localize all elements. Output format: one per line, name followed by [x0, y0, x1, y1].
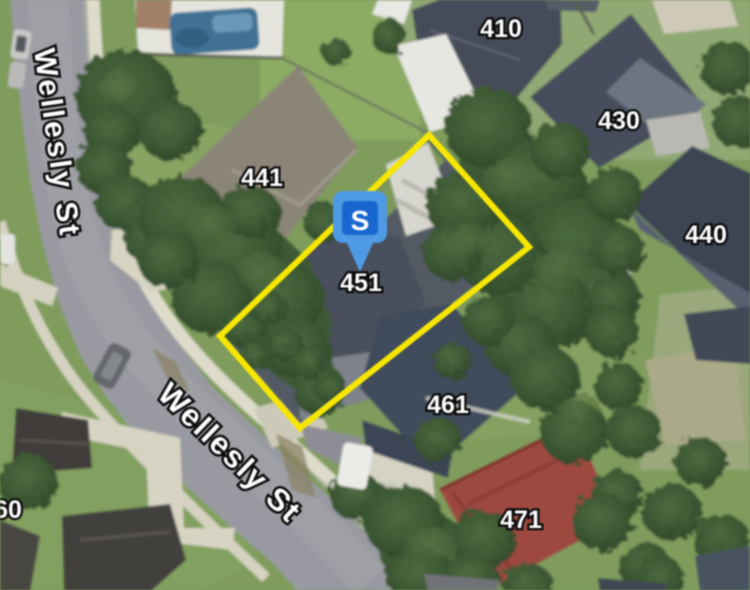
svg-text:471: 471 — [500, 506, 542, 534]
svg-text:441: 441 — [241, 164, 283, 192]
svg-text:461: 461 — [427, 391, 469, 419]
svg-text:440: 440 — [685, 221, 727, 249]
svg-text:451: 451 — [340, 269, 382, 297]
svg-text:S: S — [351, 205, 370, 236]
svg-text:430: 430 — [598, 107, 640, 135]
svg-text:60: 60 — [0, 496, 22, 524]
svg-text:410: 410 — [480, 15, 522, 43]
